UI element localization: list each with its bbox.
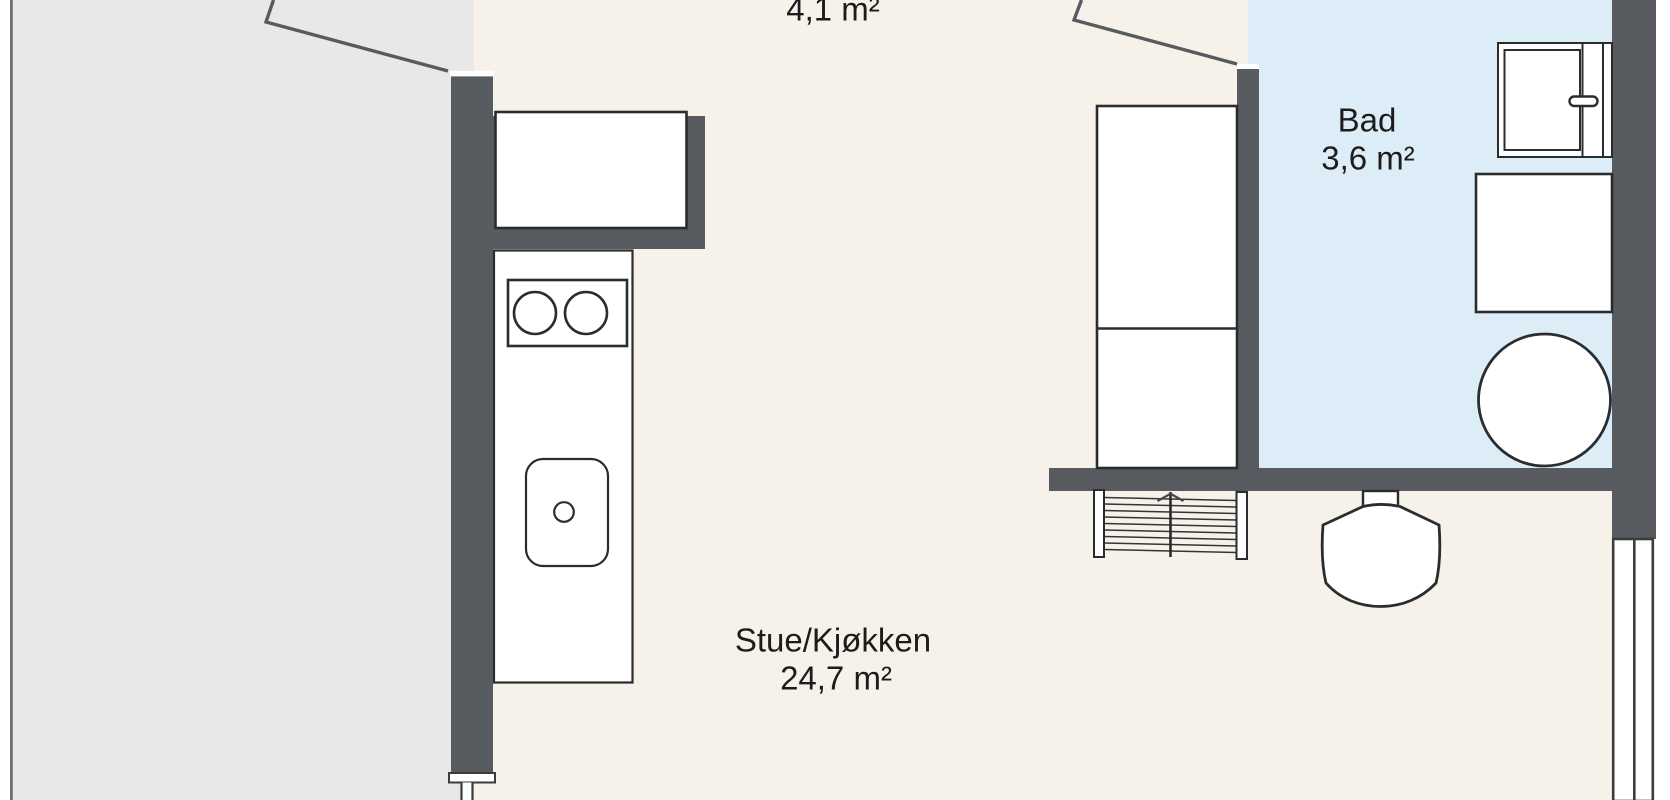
svg-text:Bad: Bad bbox=[1338, 102, 1397, 139]
svg-text:3,6 m²: 3,6 m² bbox=[1321, 140, 1415, 177]
svg-text:24,7 m²: 24,7 m² bbox=[780, 660, 892, 697]
svg-text:4,1 m²: 4,1 m² bbox=[786, 0, 880, 28]
svg-text:Stue/Kjøkken: Stue/Kjøkken bbox=[735, 622, 931, 659]
